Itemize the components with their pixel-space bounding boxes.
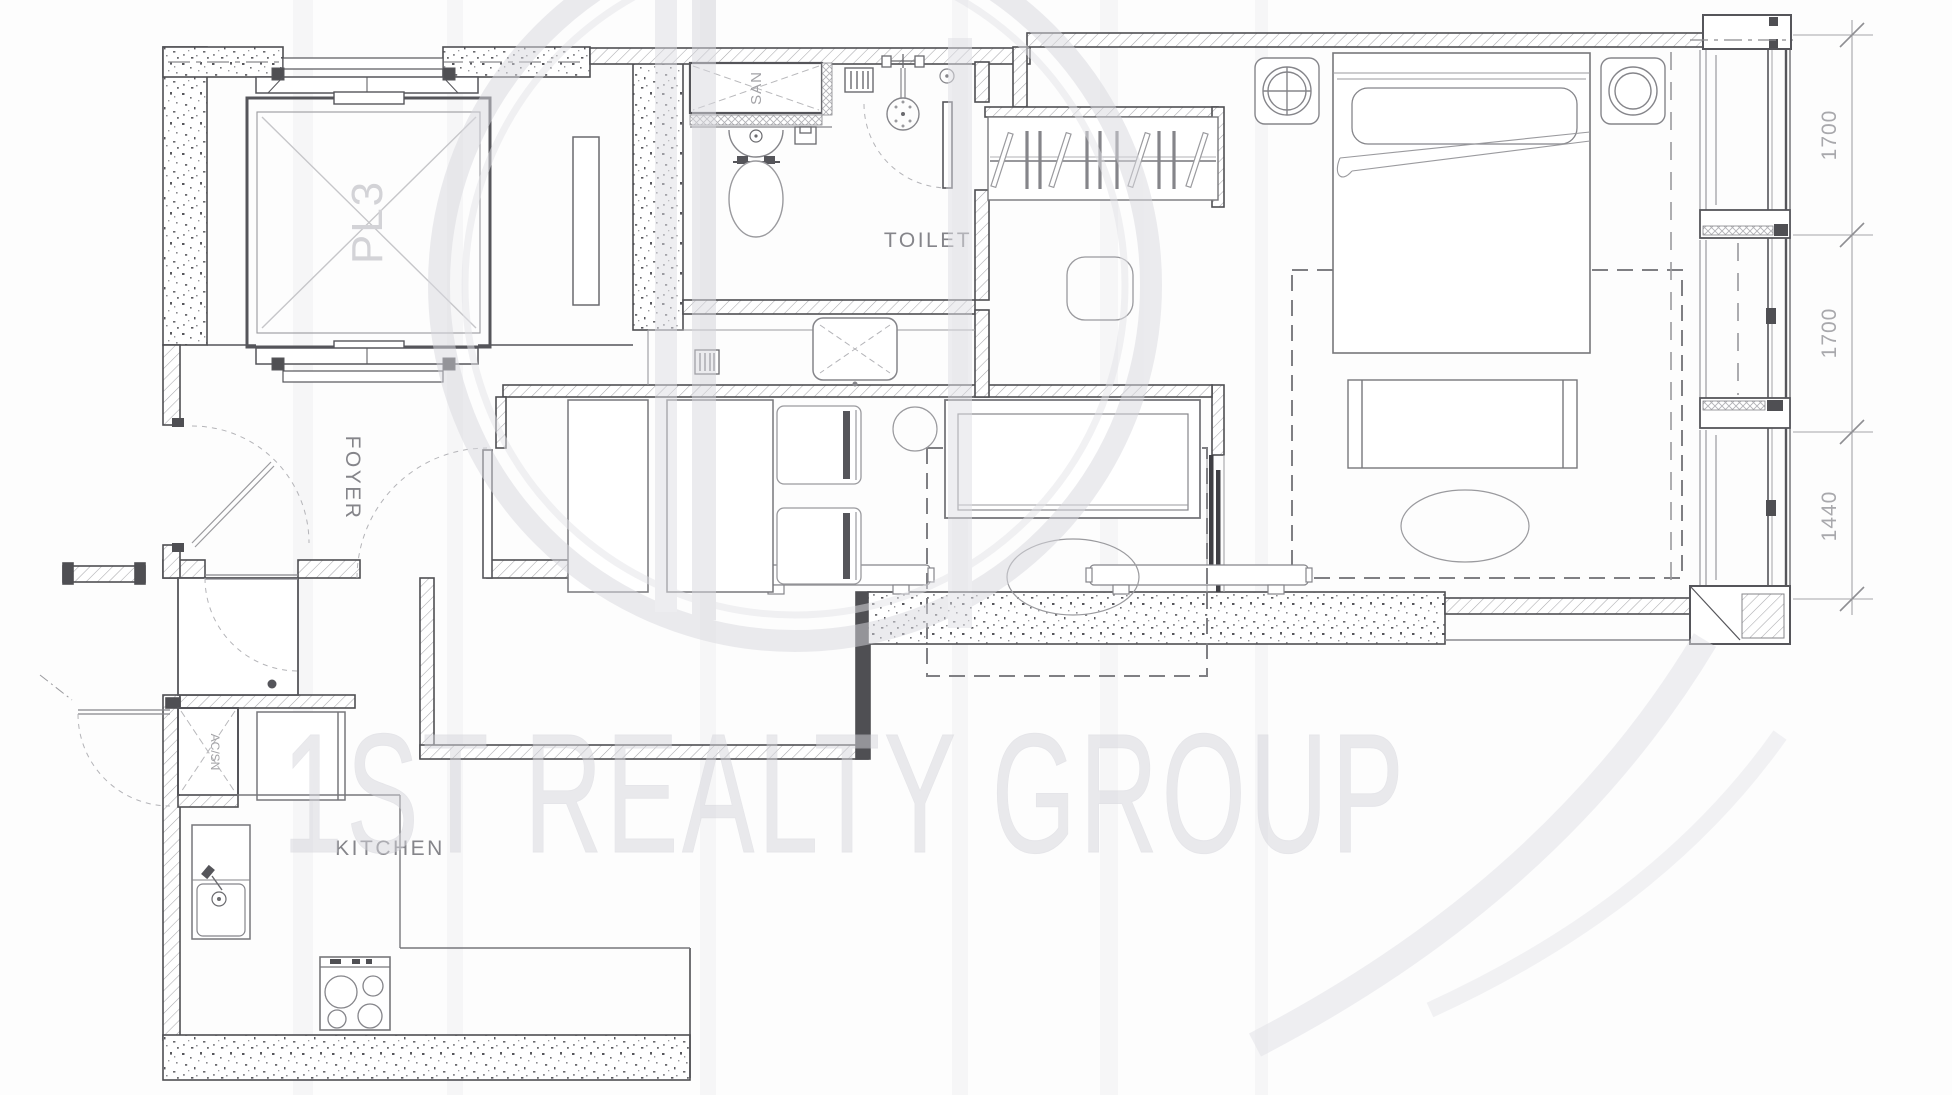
- foyer-living-door: [357, 448, 492, 578]
- toilet-fixture: [729, 156, 783, 237]
- wall-jog: [1013, 47, 1027, 107]
- foot-bench: [1348, 380, 1577, 468]
- window-transom-2: [1700, 398, 1790, 428]
- wall-partition-mid: [1212, 385, 1224, 455]
- bed: [1333, 53, 1590, 353]
- wall-lobby-west: [163, 47, 207, 345]
- dim-value-2: 1700: [1818, 308, 1841, 359]
- window-bench-right: [1086, 565, 1312, 594]
- nightstand-right: [1601, 58, 1665, 124]
- wall-niche-east: [975, 310, 989, 397]
- watermark-logo-bar-1: [655, 0, 677, 612]
- stove: [320, 957, 390, 1030]
- side-stool: [893, 407, 937, 451]
- nightstand-left: [1255, 58, 1319, 124]
- dining-table: [667, 400, 773, 592]
- bathroom-door: [864, 102, 952, 188]
- chair-bottom: [777, 508, 861, 584]
- wall-bath-east-upper: [975, 62, 989, 102]
- chair-top: [777, 406, 861, 484]
- wall-foyer-south-b: [298, 560, 360, 578]
- shower-valve: [882, 54, 924, 68]
- san-label: SAN: [748, 71, 765, 105]
- dimension-string: 1700 1700 1440: [1793, 20, 1873, 615]
- watermark-logo-bar-3: [948, 38, 972, 628]
- console-table: [813, 318, 897, 387]
- entry-door: [40, 675, 170, 806]
- wall-bath-south: [683, 300, 975, 314]
- wall-foyer-west-a: [163, 345, 180, 425]
- pouf: [1401, 490, 1529, 562]
- window-head-top: [1690, 15, 1793, 49]
- flush-plate: [795, 127, 816, 144]
- wall-sill-east: [1445, 598, 1695, 614]
- watermark-text: 1ST REALTY GROUP: [283, 699, 1408, 889]
- watermark-logo-bar-2: [692, 0, 716, 620]
- window-wall: [1690, 15, 1793, 644]
- utility-closet: [178, 575, 298, 695]
- door-stop: [268, 680, 277, 689]
- kitchen-sink: [192, 825, 250, 939]
- floor-plan-drawing: 1700 1700 1440 PL3 SAN TOILET FOYER AC/S…: [0, 0, 1952, 1095]
- window-transom-1: [1700, 210, 1790, 238]
- wall-vestibule: [63, 566, 145, 582]
- foyer-west-door: [172, 418, 309, 552]
- shower-head: [887, 68, 919, 130]
- ac-shaft: [178, 708, 238, 795]
- window-inner-board: [1700, 50, 1716, 585]
- foyer-label: FOYER: [341, 436, 364, 521]
- wall-ac-south: [178, 795, 238, 807]
- elevator: [207, 58, 633, 382]
- dim-value-1: 1700: [1818, 110, 1841, 161]
- ac-label: AC/SN: [208, 734, 222, 771]
- elevator-label: PL3: [343, 180, 392, 264]
- lobby-pilaster: [573, 137, 599, 305]
- vent-grille: [845, 68, 873, 92]
- floor-plan-page: 1700 1700 1440 PL3 SAN TOILET FOYER AC/S…: [0, 0, 1952, 1095]
- wall-bath-east-lower: [975, 190, 989, 300]
- dim-value-3: 1440: [1818, 491, 1841, 542]
- wall-kitchen-south: [163, 1035, 690, 1080]
- wall-bedroom-north: [1027, 33, 1748, 47]
- window-corner-bottom: [1690, 586, 1790, 644]
